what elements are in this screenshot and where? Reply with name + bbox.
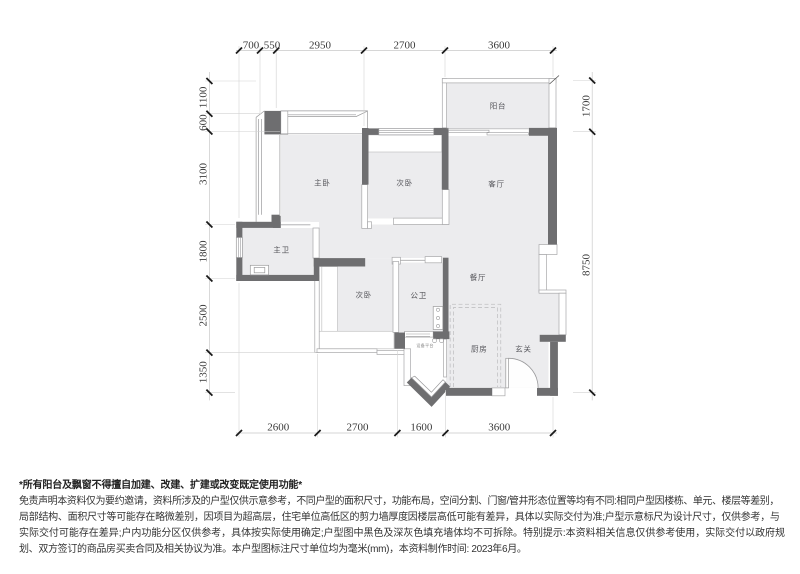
- svg-text:1350: 1350: [198, 361, 210, 384]
- svg-text:3600: 3600: [488, 421, 511, 433]
- svg-text:设备平台: 设备平台: [416, 342, 434, 349]
- svg-text:700: 700: [243, 39, 260, 51]
- svg-text:1100: 1100: [198, 86, 210, 108]
- svg-text:2500: 2500: [198, 304, 210, 327]
- svg-text:主卫: 主卫: [273, 245, 290, 255]
- svg-text:阳台: 阳台: [490, 100, 507, 110]
- svg-text:主卧: 主卧: [314, 177, 331, 187]
- svg-text:厨房: 厨房: [471, 343, 488, 353]
- svg-text:次卧: 次卧: [355, 290, 372, 300]
- svg-text:8750: 8750: [580, 254, 592, 277]
- svg-text:客厅: 客厅: [488, 179, 505, 189]
- svg-text:3600: 3600: [488, 39, 511, 51]
- svg-text:600: 600: [198, 114, 210, 131]
- svg-text:1600: 1600: [410, 421, 433, 433]
- svg-text:1700: 1700: [580, 95, 592, 118]
- svg-text:玄关: 玄关: [515, 343, 532, 353]
- svg-text:次卧: 次卧: [396, 177, 413, 187]
- svg-text:1800: 1800: [198, 240, 210, 263]
- svg-text:2700: 2700: [347, 421, 370, 433]
- svg-text:550: 550: [264, 39, 281, 51]
- svg-text:2950: 2950: [309, 39, 332, 51]
- svg-text:餐厅: 餐厅: [470, 273, 487, 282]
- svg-text:公卫: 公卫: [410, 291, 427, 300]
- svg-text:2700: 2700: [394, 39, 417, 51]
- svg-text:2600: 2600: [267, 421, 290, 433]
- svg-text:3100: 3100: [198, 163, 210, 186]
